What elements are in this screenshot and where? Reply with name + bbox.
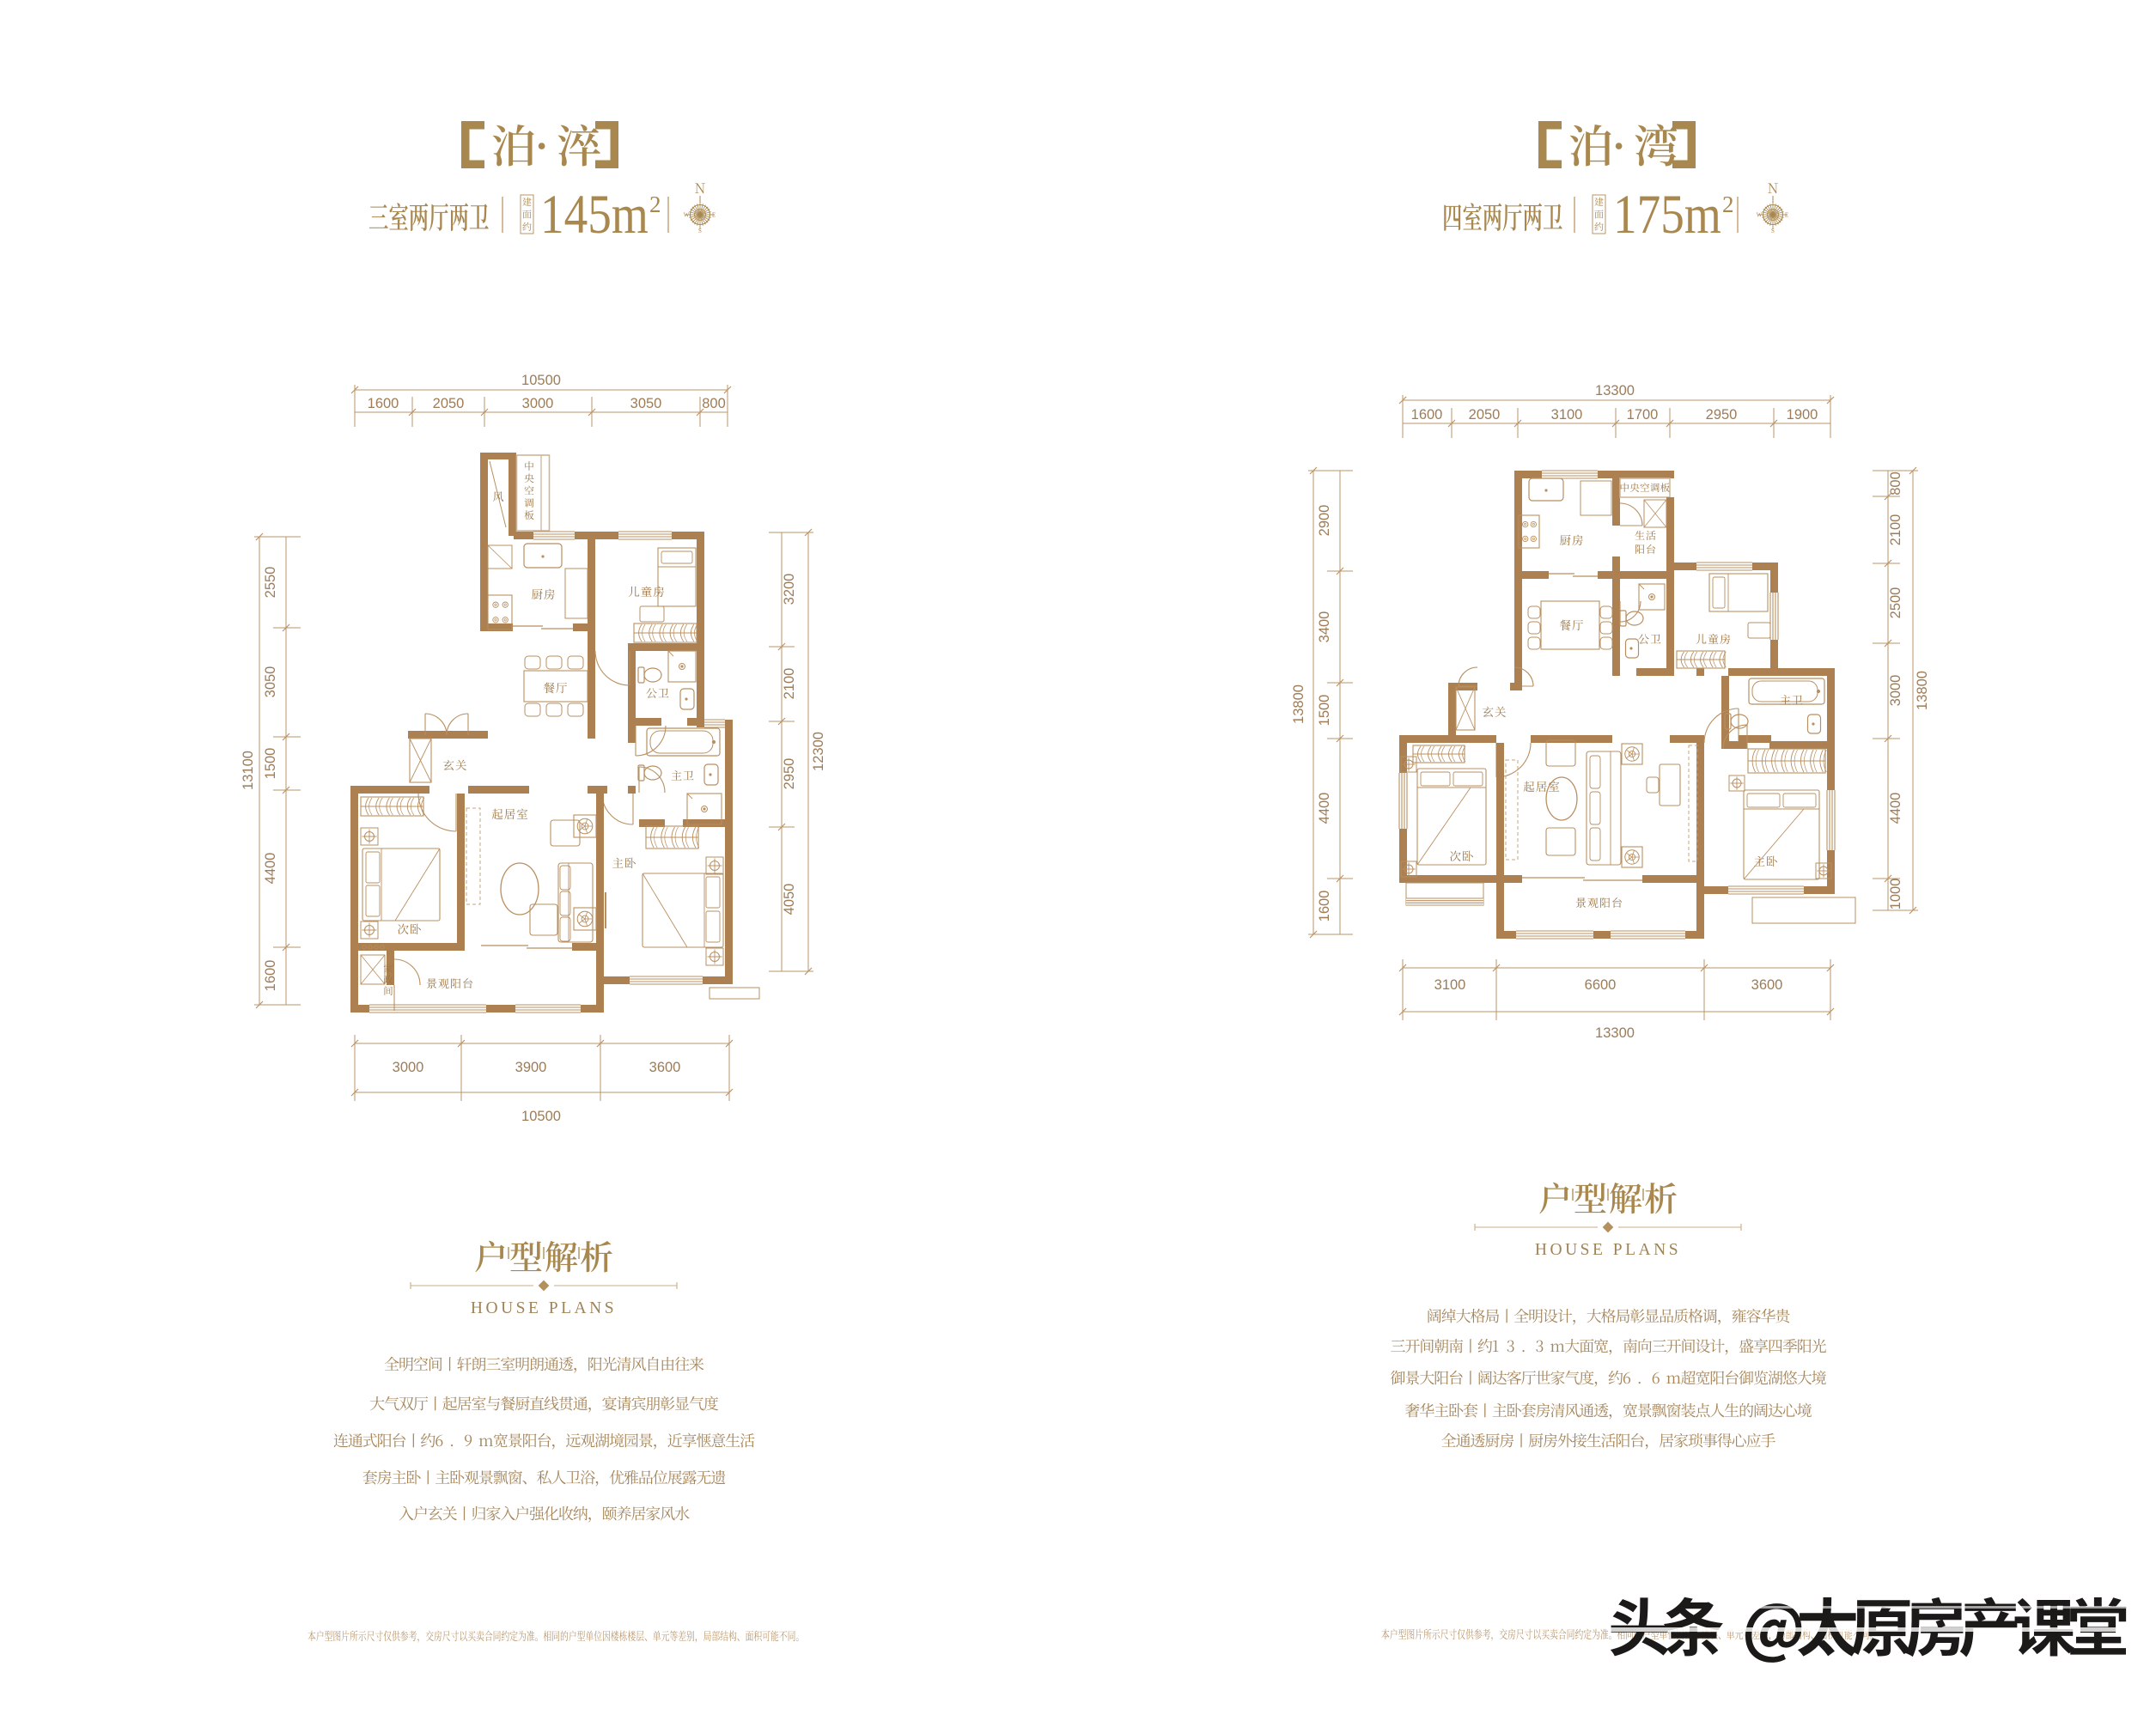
- svg-text:3050: 3050: [263, 666, 278, 698]
- svg-text:2900: 2900: [1317, 505, 1332, 537]
- svg-text:1600: 1600: [368, 396, 399, 411]
- svg-text:2500: 2500: [1888, 587, 1903, 619]
- svg-text:2: 2: [1722, 192, 1734, 217]
- svg-text:4400: 4400: [263, 853, 278, 885]
- svg-text:3000: 3000: [393, 1060, 424, 1075]
- svg-text:3600: 3600: [1751, 977, 1783, 993]
- svg-text:W: W: [684, 212, 690, 219]
- svg-text:S: S: [698, 228, 702, 234]
- svg-text:3000: 3000: [1888, 675, 1903, 707]
- svg-text:3600: 3600: [649, 1060, 681, 1075]
- svg-text:2100: 2100: [1888, 514, 1903, 546]
- svg-text:6600: 6600: [1585, 977, 1617, 993]
- svg-text:2950: 2950: [782, 758, 797, 790]
- svg-text:1700: 1700: [1627, 407, 1659, 423]
- svg-text:3900: 3900: [515, 1060, 547, 1075]
- svg-text:13800: 13800: [1915, 671, 1930, 710]
- svg-text:E: E: [712, 212, 716, 219]
- svg-text:13300: 13300: [1595, 1025, 1635, 1041]
- svg-text:2550: 2550: [263, 567, 278, 599]
- svg-text:2: 2: [649, 192, 661, 217]
- svg-text:13100: 13100: [241, 751, 256, 790]
- svg-text:1600: 1600: [1411, 407, 1443, 423]
- svg-text:2100: 2100: [782, 668, 797, 700]
- svg-text:10500: 10500: [521, 373, 561, 388]
- svg-text:1500: 1500: [263, 748, 278, 780]
- svg-text:3100: 3100: [1434, 977, 1466, 993]
- svg-text:3200: 3200: [782, 574, 797, 605]
- svg-text:13800: 13800: [1291, 684, 1306, 724]
- svg-text:4050: 4050: [782, 884, 797, 915]
- svg-text:W: W: [1757, 212, 1763, 219]
- svg-text:1500: 1500: [1317, 695, 1332, 727]
- svg-text:HOUSE PLANS: HOUSE PLANS: [471, 1299, 617, 1317]
- svg-text:3100: 3100: [1551, 407, 1583, 423]
- svg-text:1600: 1600: [1317, 891, 1332, 922]
- svg-text:1900: 1900: [1787, 407, 1818, 423]
- svg-text:12300: 12300: [811, 732, 826, 771]
- svg-text:E: E: [1785, 212, 1788, 219]
- svg-text:4400: 4400: [1888, 793, 1903, 824]
- svg-text:3050: 3050: [630, 396, 662, 411]
- svg-text:13300: 13300: [1595, 383, 1635, 398]
- svg-text:145m: 145m: [540, 184, 649, 246]
- svg-text:175m: 175m: [1613, 184, 1721, 246]
- svg-text:2950: 2950: [1706, 407, 1738, 423]
- svg-text:1000: 1000: [1888, 879, 1903, 910]
- svg-text:800: 800: [1888, 471, 1903, 496]
- svg-text:800: 800: [702, 396, 726, 411]
- svg-text:S: S: [1771, 228, 1775, 234]
- svg-text:4400: 4400: [1317, 793, 1332, 824]
- svg-text:10500: 10500: [521, 1109, 561, 1124]
- svg-text:3000: 3000: [522, 396, 554, 411]
- svg-text:1600: 1600: [263, 960, 278, 992]
- svg-text:2050: 2050: [433, 396, 465, 411]
- svg-text:HOUSE PLANS: HOUSE PLANS: [1535, 1241, 1681, 1259]
- svg-text:3400: 3400: [1317, 611, 1332, 643]
- svg-text:2050: 2050: [1469, 407, 1501, 423]
